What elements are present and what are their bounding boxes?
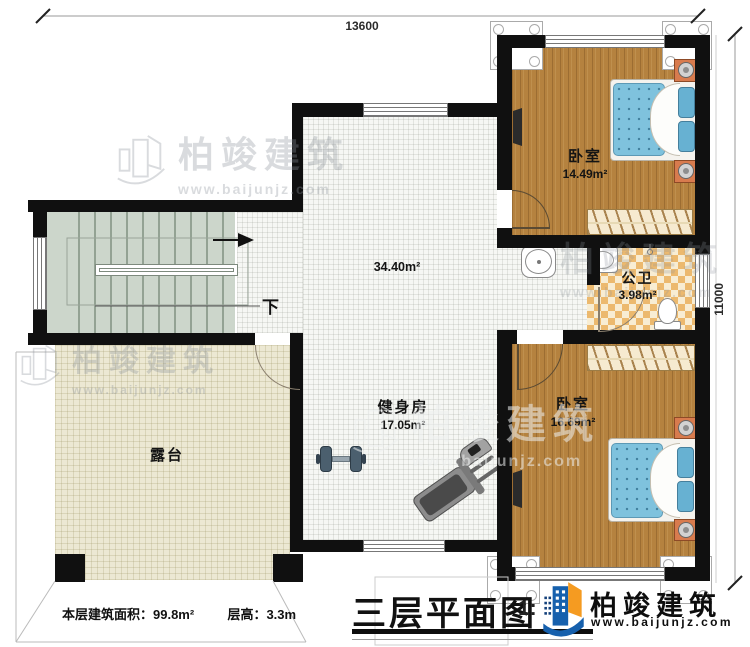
room-name: 健身房 <box>358 399 448 418</box>
wall <box>563 330 710 344</box>
wall <box>497 35 512 190</box>
wall <box>587 248 600 285</box>
room-name: 卧室 <box>528 396 618 415</box>
room-area: 34.40m² <box>362 260 432 276</box>
dimension-right: 11000 <box>712 283 726 316</box>
wall <box>292 103 303 208</box>
wall <box>497 567 515 581</box>
room-area: 14.49m² <box>540 167 630 182</box>
wall <box>695 344 710 581</box>
door-leaf <box>517 344 519 390</box>
watermark-logo-icon <box>112 131 170 193</box>
pillow <box>678 87 695 118</box>
window <box>695 254 710 308</box>
lamp-icon <box>678 163 694 179</box>
stairs-down-label: 下 <box>262 293 279 318</box>
basin-drain <box>537 260 541 264</box>
room-area: 16.69m² <box>528 415 618 430</box>
wall <box>497 35 545 48</box>
area-note: 本层建筑面积：99.8m² <box>62 607 194 622</box>
wardrobe <box>587 345 695 371</box>
dumbbell-icon <box>316 444 366 474</box>
door-leaf <box>512 227 550 229</box>
wardrobe <box>587 209 693 235</box>
room-area: 3.98m² <box>600 288 675 303</box>
tv <box>513 108 522 146</box>
brand-logo-icon <box>540 580 586 643</box>
plan-title: 三层平面图 <box>352 586 537 635</box>
pillow <box>678 121 695 152</box>
lamp-icon <box>678 522 694 538</box>
room-label-gym: 健身房 17.05m² <box>358 399 448 433</box>
wall <box>33 200 47 237</box>
wall <box>695 308 710 330</box>
room-name: 露台 <box>132 447 202 466</box>
terrace-column <box>55 554 85 582</box>
wall <box>497 344 512 567</box>
window <box>515 567 665 581</box>
wall <box>497 330 517 344</box>
room-label-bathroom: 公卫 3.98m² <box>600 270 675 303</box>
window <box>545 35 665 48</box>
stair-handrail <box>95 264 238 276</box>
lamp-icon <box>678 62 694 78</box>
wall <box>695 35 710 248</box>
wall <box>290 333 303 345</box>
scale-label: 1: <box>518 597 537 621</box>
wall <box>497 235 710 248</box>
dimension-top: 13600 <box>330 19 394 33</box>
window <box>363 103 448 117</box>
room-label-terrace: 露台 <box>132 447 202 466</box>
room-area: 17.05m² <box>358 418 448 433</box>
floor-plan-page: 13600 11000 卧室 14.49m² 公卫 3.98m² 卧室 16.6… <box>0 0 750 647</box>
pillow <box>677 481 694 512</box>
vanity-basin <box>521 245 556 278</box>
room-name: 公卫 <box>600 270 675 288</box>
height-note: 层高：3.3m <box>227 607 296 622</box>
lamp-icon <box>678 420 694 436</box>
room-label-bedroom1: 卧室 14.49m² <box>540 148 630 182</box>
window <box>363 540 445 552</box>
floor-area-note: 本层建筑面积：99.8m² 层高：3.3m <box>62 604 296 623</box>
window <box>33 237 47 310</box>
room-name: 卧室 <box>540 148 630 167</box>
room-label-hall: 34.40m² <box>362 260 432 276</box>
wall <box>28 333 255 345</box>
wall <box>290 540 363 552</box>
pillow <box>677 447 694 478</box>
room-label-bedroom2: 卧室 16.69m² <box>528 396 618 430</box>
wall <box>28 200 303 212</box>
terrace-column <box>273 554 303 582</box>
brand-website: www.baijunjz.com <box>591 615 733 629</box>
wall <box>292 103 363 117</box>
wall <box>665 567 710 581</box>
